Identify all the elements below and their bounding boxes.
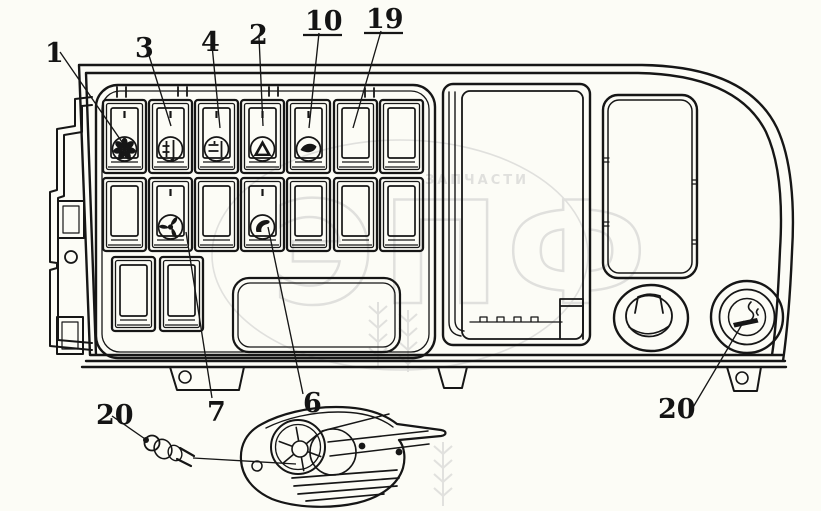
rocker-switch-blank (103, 178, 146, 251)
switch-rocker (342, 108, 369, 158)
rocker-switch-blower-fan (103, 100, 146, 173)
cigarette-smoke (749, 302, 759, 320)
bracket-hole-bottom-inner (62, 322, 78, 349)
rocker-switch-blank (195, 178, 238, 251)
vent-spokes (279, 427, 320, 470)
switch-rocker (111, 186, 138, 236)
callout-label-10: 10 (305, 6, 343, 37)
housing-screw-1 (359, 443, 366, 450)
washer-blob (301, 144, 317, 153)
diagram-page: ЗАПЧАСТИ ЭПФ (0, 0, 821, 511)
switch-bottom-lip (165, 320, 198, 325)
detached-vent-housing (241, 407, 446, 507)
rocker-switch-washer (287, 100, 330, 173)
vent-fan-hub (168, 224, 173, 229)
callout-label-4: 4 (201, 27, 220, 58)
foot-hole-right (736, 372, 748, 384)
mounting-feet (170, 367, 761, 391)
switch-bottom-lip (108, 240, 141, 245)
callout-label-7: 7 (207, 397, 226, 428)
foot-hole-left (179, 371, 191, 383)
switch-bezel-inner (338, 104, 374, 170)
horn-crescent (256, 220, 270, 232)
callout-label-1: 1 (45, 38, 64, 69)
vent-fan-blade (171, 217, 178, 226)
bracket-hole-top-inner (63, 206, 79, 233)
switch-rocker (120, 265, 147, 316)
rocker-switch-defroster (195, 100, 238, 173)
rocker-switch-ventilation-fan (149, 178, 192, 251)
callout-label-2: 2 (249, 20, 268, 51)
callout-label-20: 20 (96, 400, 134, 431)
switch-bottom-lip (154, 240, 187, 245)
plug-collar (166, 443, 185, 463)
switch-bezel-inner (384, 104, 420, 170)
rocker-switch-blank (112, 257, 155, 331)
fan-hub (122, 147, 126, 151)
switch-bezel-inner (107, 182, 143, 248)
switch-bottom-lip (200, 162, 233, 167)
lighter-bezel (711, 281, 783, 353)
switch-bottom-lip (154, 162, 187, 167)
switch-bottom-lip (385, 162, 418, 167)
callout-label-3: 3 (135, 33, 154, 64)
callout-label-20: 20 (658, 394, 696, 425)
watermark-logo: ЗАПЧАСТИ ЭПФ (212, 140, 653, 506)
vent-rim-outer (271, 420, 325, 474)
switch-panel-clip-ticks (117, 87, 374, 97)
housing-slats (292, 470, 399, 501)
switch-bottom-lip (339, 162, 372, 167)
vent-duct-rim (310, 429, 356, 475)
cigarette-icon (733, 318, 759, 328)
defroster-lines (209, 141, 222, 157)
vent-fan-blade (159, 222, 170, 232)
switch-bezel-inner (164, 261, 200, 328)
housing-outline (241, 407, 446, 507)
switch-bottom-lip (108, 162, 141, 167)
switch-rocker (388, 108, 415, 158)
heater-fan-lines (163, 140, 174, 160)
bulb-plug (143, 436, 194, 467)
switch-bottom-lip (246, 162, 279, 167)
lighter-center (729, 299, 766, 336)
switch-bottom-lip (292, 162, 325, 167)
bracket-hole-round (65, 251, 77, 263)
dashboard-switch-panel-diagram: ЗАПЧАСТИ ЭПФ (0, 0, 821, 511)
vent-hub (292, 441, 308, 457)
switch-rocker (168, 265, 195, 316)
rocker-switch-blank (160, 257, 203, 331)
switch-bottom-lip (117, 320, 150, 325)
switch-bezel-inner (199, 182, 235, 248)
rocker-switch-blank (334, 100, 377, 173)
switch-bottom-lip (200, 240, 233, 245)
rocker-switch-heater-fan (149, 100, 192, 173)
plug-prongs (177, 448, 194, 466)
cigarette-lighter (711, 281, 783, 353)
switch-bezel-inner (116, 261, 152, 328)
housing-ribs (322, 414, 429, 456)
callout-label-19: 19 (366, 4, 404, 35)
housing-screw-2 (396, 449, 403, 456)
hazard-triangle (254, 140, 272, 156)
rocker-switch-blank (380, 100, 423, 173)
callout-label-6: 6 (303, 388, 322, 419)
